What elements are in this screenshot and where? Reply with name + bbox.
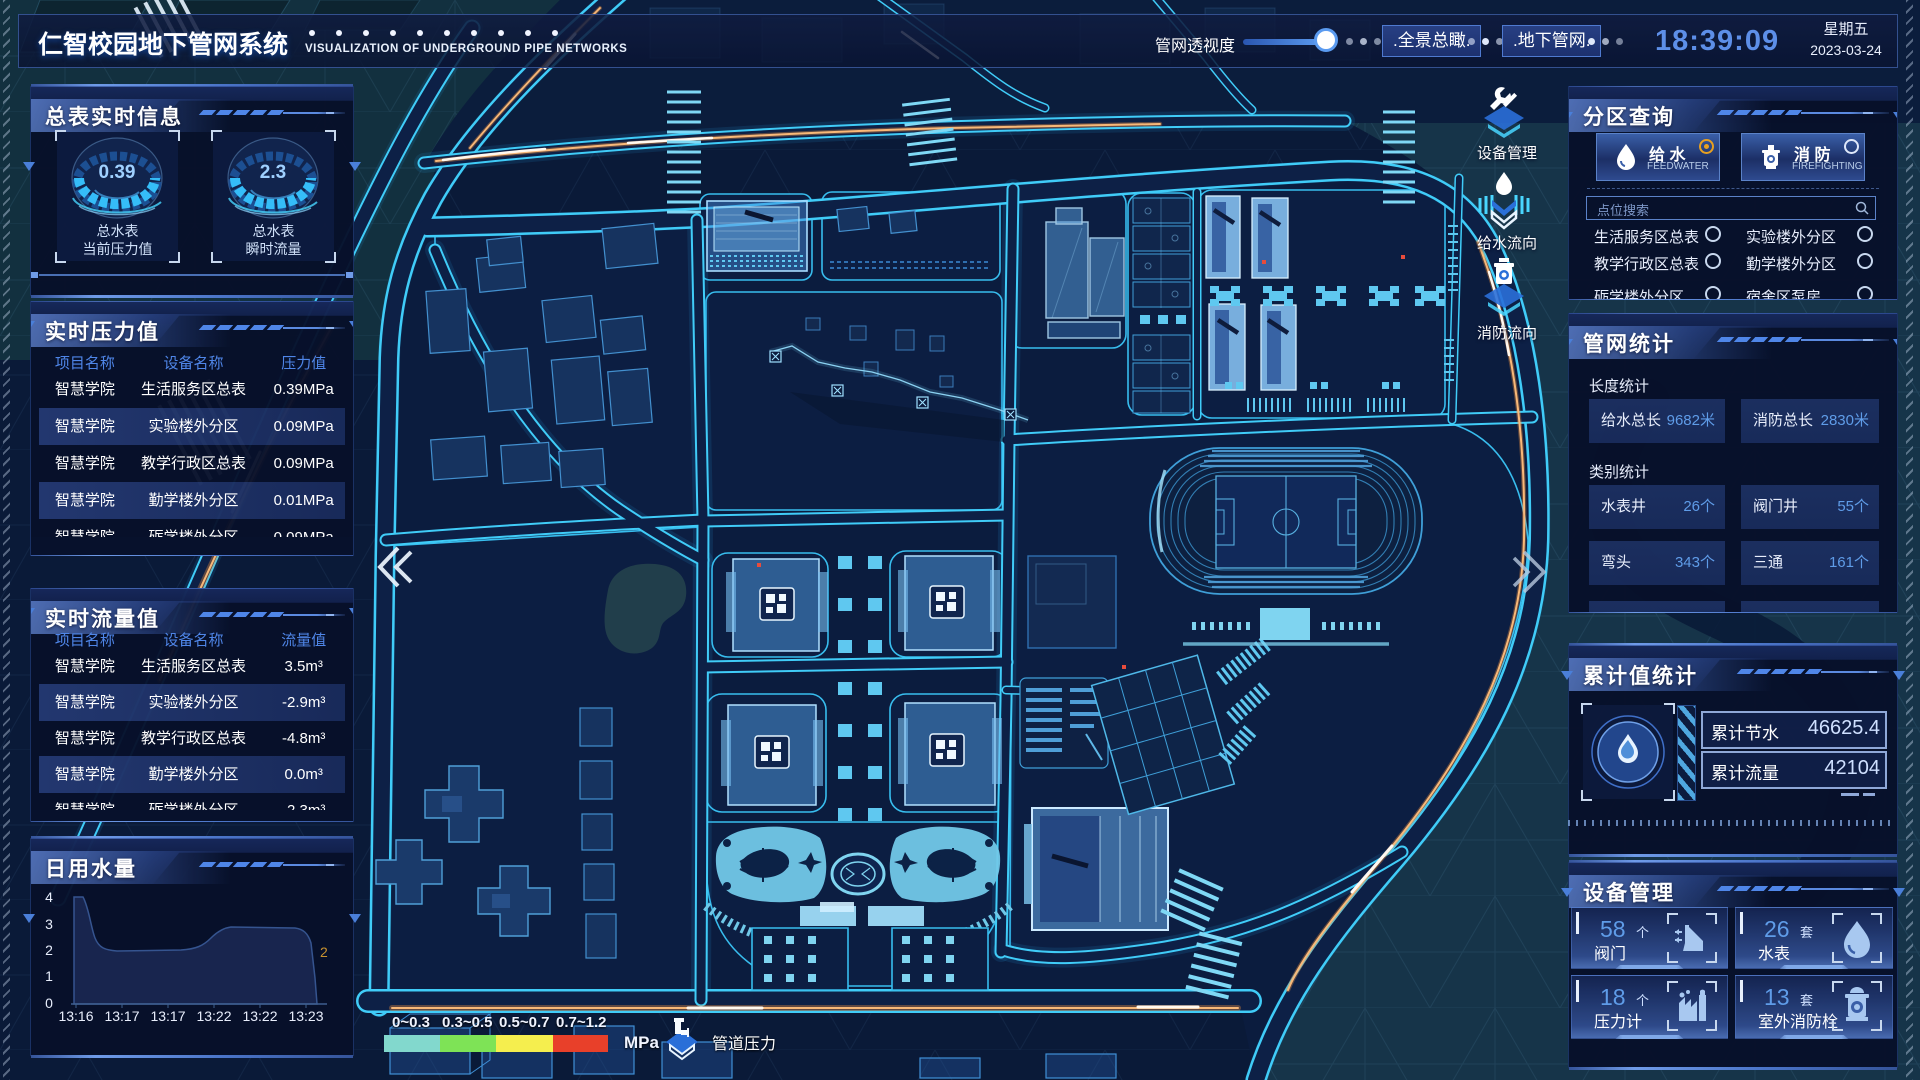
svg-text:3: 3 xyxy=(45,916,53,932)
svg-text:4: 4 xyxy=(45,889,53,905)
svg-text:13:17: 13:17 xyxy=(104,1008,139,1024)
svg-text:1: 1 xyxy=(45,968,53,984)
svg-text:13:17: 13:17 xyxy=(150,1008,185,1024)
svg-text:2: 2 xyxy=(45,942,53,958)
svg-text:13:22: 13:22 xyxy=(242,1008,277,1024)
svg-text:13:23: 13:23 xyxy=(288,1008,323,1024)
svg-text:0.39: 0.39 xyxy=(99,162,136,183)
svg-text:13:16: 13:16 xyxy=(58,1008,93,1024)
svg-text:2.3: 2.3 xyxy=(260,162,286,183)
svg-text:0: 0 xyxy=(45,995,53,1011)
svg-text:13:22: 13:22 xyxy=(196,1008,231,1024)
svg-text:2: 2 xyxy=(320,944,328,960)
